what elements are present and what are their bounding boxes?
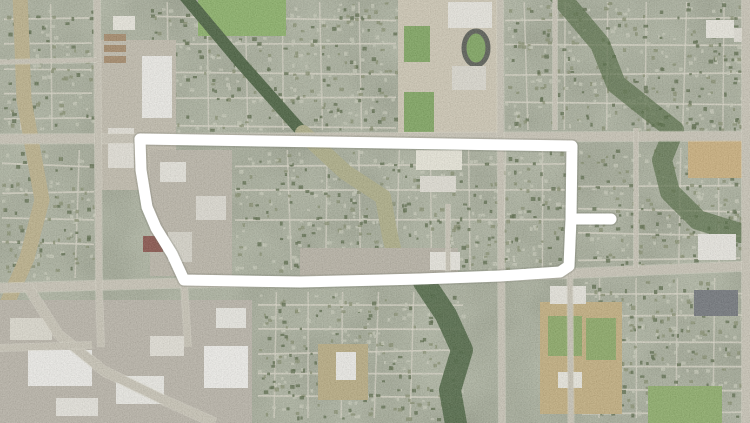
- grain-texture-layer: [0, 0, 750, 423]
- satellite-map[interactable]: [0, 0, 750, 423]
- terrain-fine-texture: [0, 0, 750, 423]
- map-viewport[interactable]: [0, 0, 750, 423]
